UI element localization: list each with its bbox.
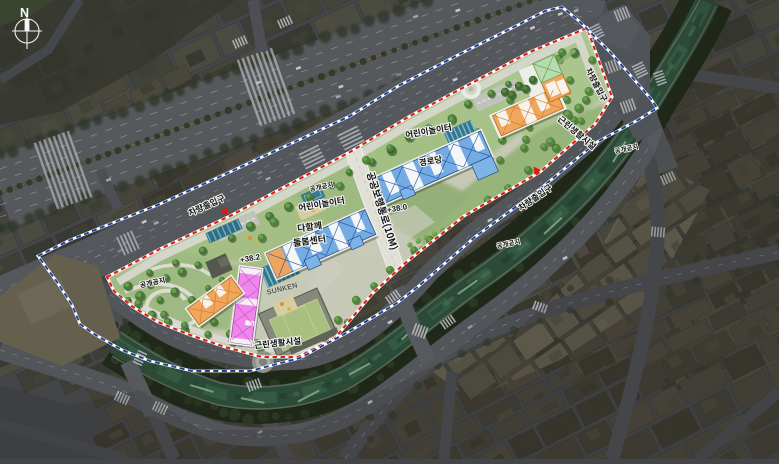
svg-text:N: N <box>20 6 29 20</box>
